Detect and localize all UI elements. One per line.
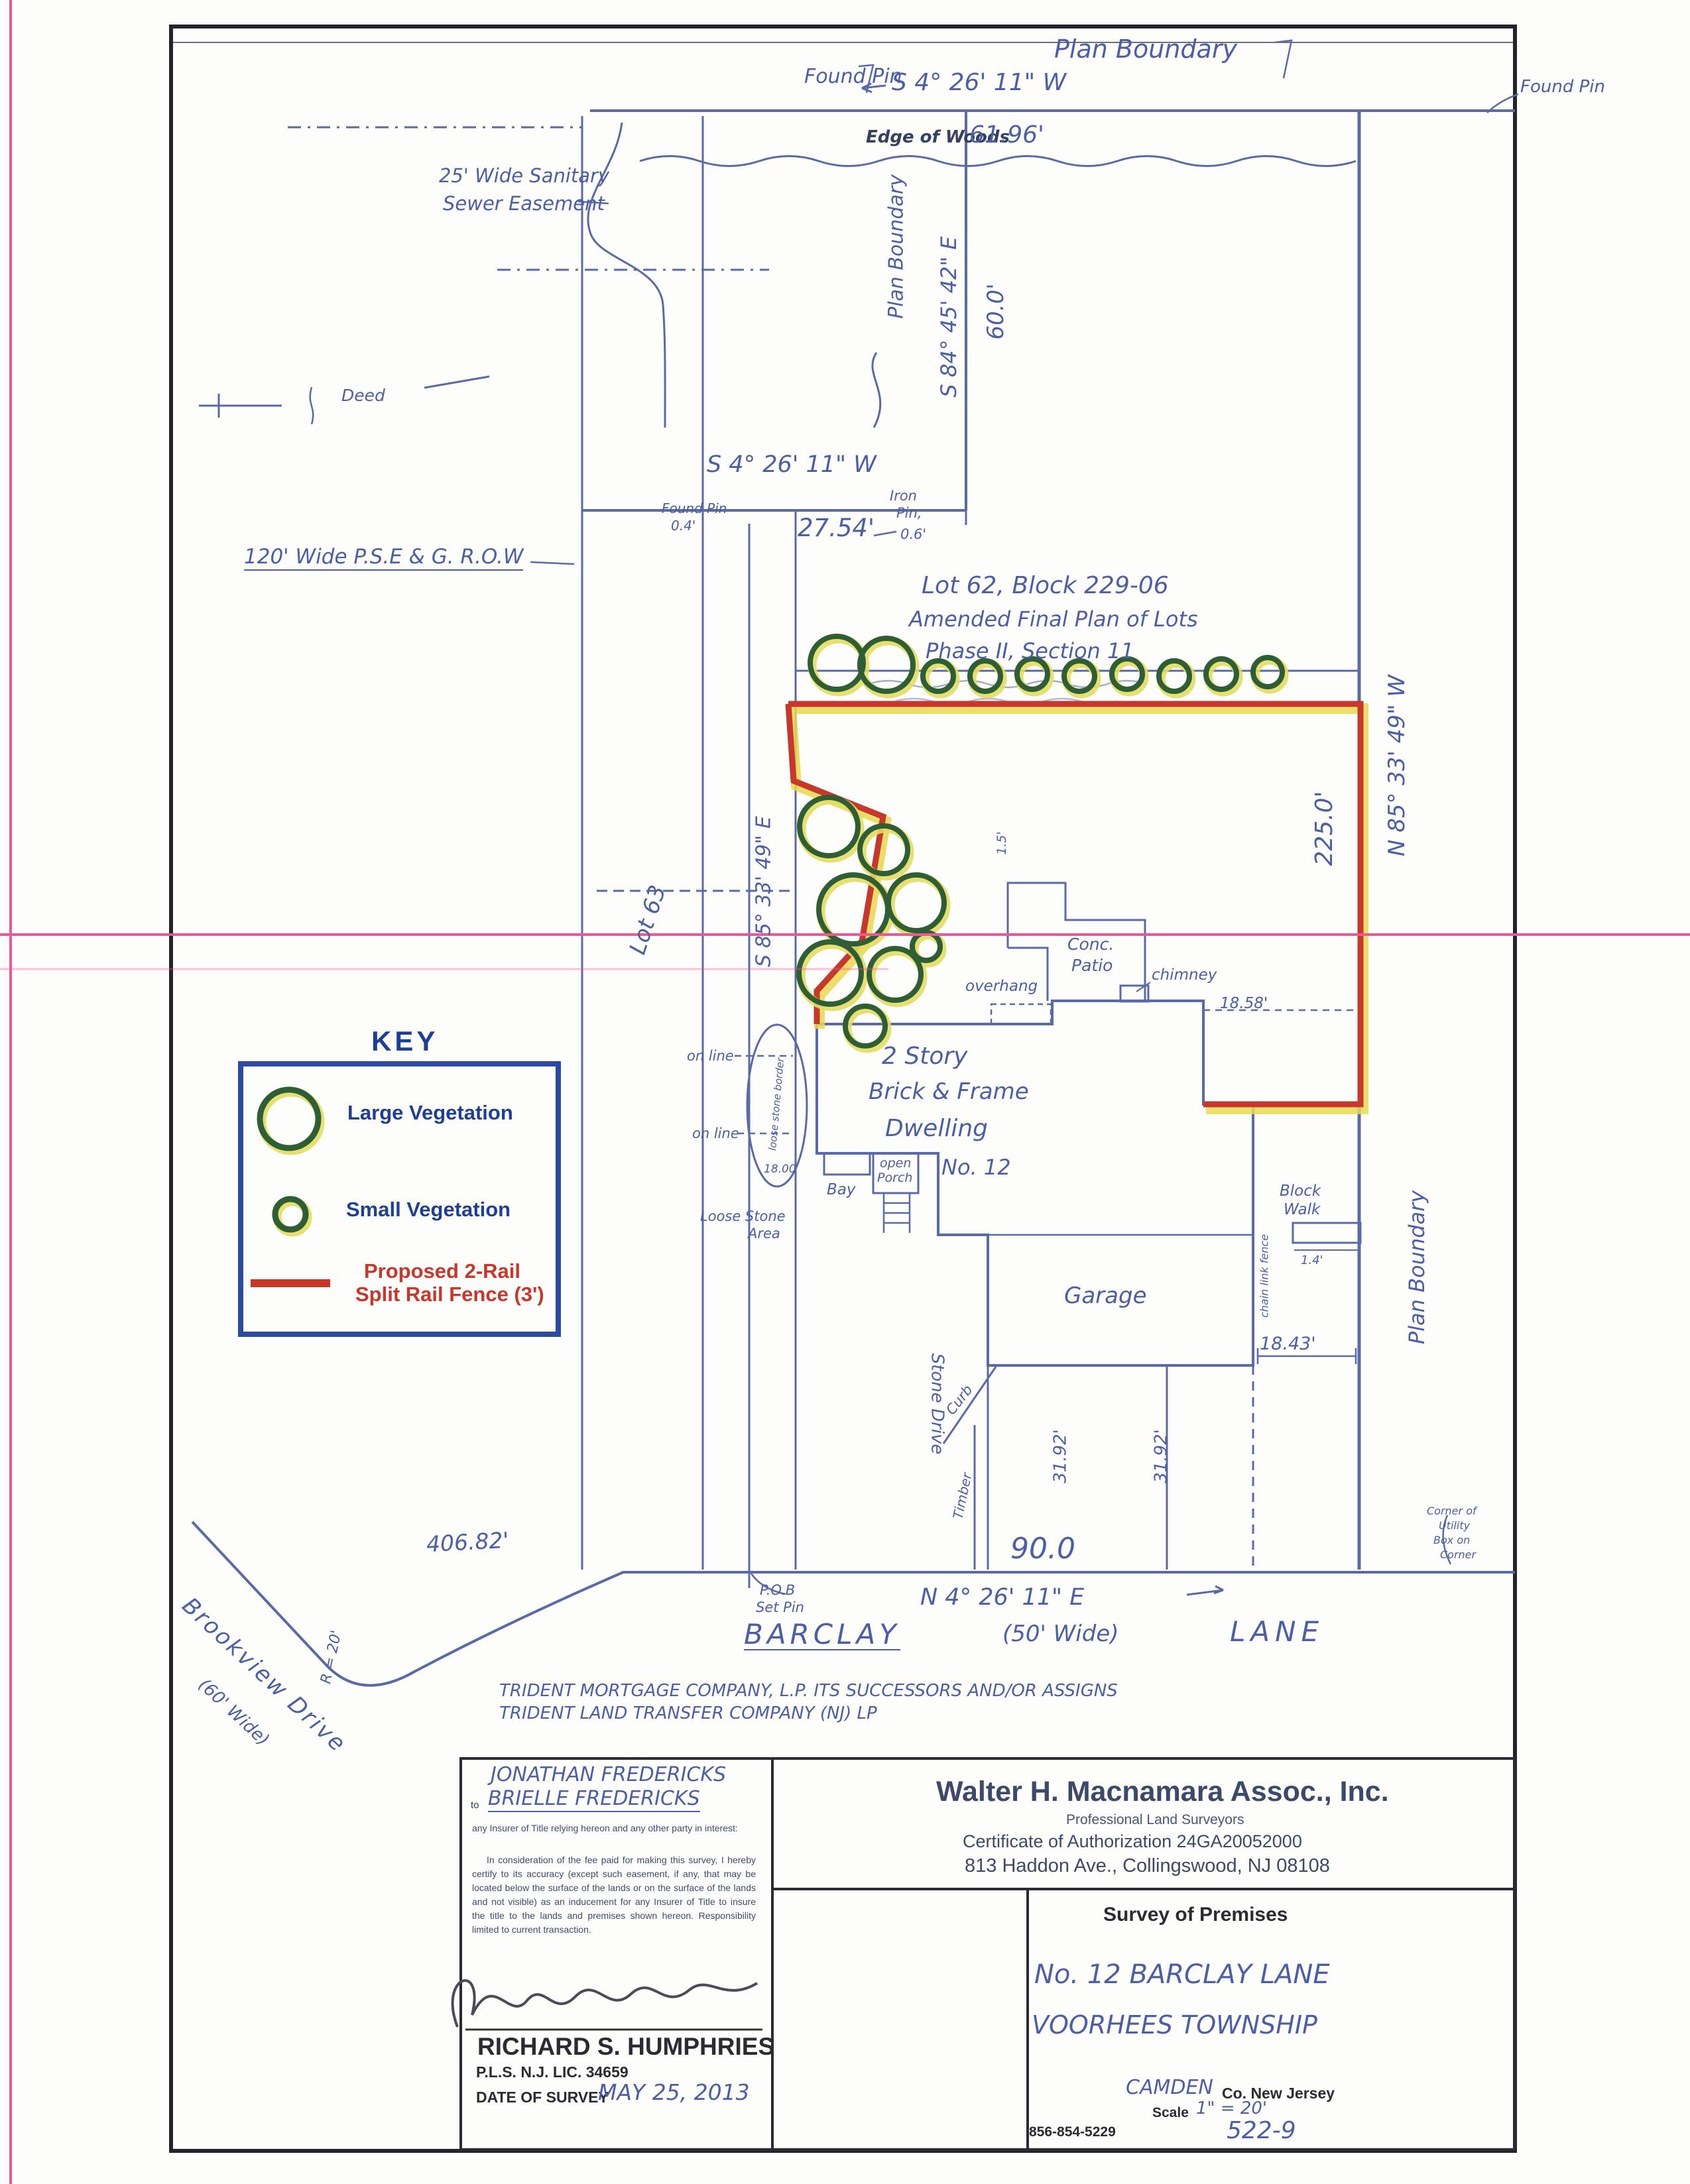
patio-label-1: Conc. — [1067, 936, 1114, 953]
east-length-label: 225.0' — [1312, 791, 1337, 866]
porch-label-1: open — [880, 1157, 911, 1171]
corridor-length-label: 60.0' — [985, 283, 1008, 339]
chain-link-fence-label: chain link fence — [1260, 1234, 1271, 1318]
client-to-label: to — [471, 1800, 479, 1811]
lot62-line2: Amended Final Plan of Lots — [909, 608, 1198, 631]
corridor-plan-boundary-label: Plan Boundary — [886, 174, 907, 319]
lot62-line1: Lot 62, Block 229-06 — [922, 573, 1169, 599]
sewer-easement-line1: 25' Wide Sanitary — [439, 166, 609, 186]
pseg-row-label: 120' Wide P.S.E & G. R.O.W — [244, 546, 523, 571]
firm-subtitle: Professional Land Surveyors — [1066, 1812, 1244, 1827]
chimney-label: chimney — [1152, 967, 1217, 983]
surveyor-license: P.L.S. N.J. LIC. 34659 — [476, 2064, 629, 2081]
west-bearing-label: S 85° 33' 49" E — [753, 816, 774, 967]
key-large-vegetation-label: Large Vegetation — [347, 1102, 513, 1124]
street-lines — [192, 1515, 1515, 1686]
dwelling-number: No. 12 — [941, 1157, 1011, 1179]
offset-15-label: 1.5' — [996, 831, 1009, 854]
mid-distance-label: 27.54' — [798, 516, 875, 542]
east-bearing-label: N 85° 33' 49" W — [1386, 675, 1410, 856]
corridor-bearing-label: S 84° 45' 42" E — [938, 237, 961, 398]
premises-address-2: VOORHEES TOWNSHIP — [1032, 2012, 1317, 2039]
owner-line-1: TRIDENT MORTGAGE COMPANY, L.P. ITS SUCCE… — [499, 1682, 1118, 1700]
on-line-label-1: on line — [687, 1049, 734, 1063]
vegetation-symbols — [799, 636, 1284, 1049]
signature — [453, 1981, 762, 2030]
certification-text-1: any Insurer of Title relying hereon and … — [472, 1821, 756, 1835]
deed-label: Deed — [341, 387, 385, 404]
client-name-1: JONATHAN FREDERICKS — [491, 1764, 726, 1786]
date-of-survey-value: MAY 25, 2013 — [598, 2081, 750, 2104]
certification-text-2: In consideration of the fee paid for mak… — [472, 1853, 756, 1937]
overhang-label: overhang — [965, 978, 1038, 994]
firm-phone: 856-854-5229 — [1029, 2124, 1116, 2140]
found-pin-left-label: Found Pin — [804, 66, 902, 87]
edge-of-woods-length: 61.96' — [969, 123, 1044, 148]
found-pin-right-label: Found Pin — [1520, 78, 1605, 96]
utility-corner-note-2: Utility — [1439, 1521, 1470, 1532]
dim-1843-label: 18.43' — [1260, 1335, 1316, 1353]
loose-stone-area-label-1: Loose Stone — [700, 1209, 786, 1224]
walk-offset-label: 1.4' — [1301, 1255, 1323, 1267]
loose-stone-area-label-2: Area — [748, 1226, 780, 1241]
lot62-line3: Phase II, Section 11 — [926, 640, 1134, 663]
porch-label-2: Porch — [877, 1172, 912, 1185]
survey-of-premises-label: Survey of Premises — [1103, 1904, 1288, 1925]
street-name-2: (50' Wide) — [1002, 1623, 1119, 1646]
key-fence-label-2: Split Rail Fence (3') — [355, 1283, 544, 1306]
drawing-border — [171, 27, 1515, 2151]
dim-1800-label: 18.00 — [764, 1164, 796, 1176]
iron-pin-line2: Pin, — [896, 506, 922, 520]
date-of-survey-label: DATE OF SURVEY — [476, 2089, 609, 2106]
sewer-easement-line2: Sewer Easement — [443, 194, 605, 213]
key-title: KEY — [371, 1026, 438, 1057]
block-walk-label-1: Block — [1280, 1183, 1321, 1199]
firm-name: Walter H. Macnamara Assoc., Inc. — [936, 1776, 1389, 1808]
bay-label: Bay — [827, 1182, 855, 1198]
utility-corner-note-1: Corner of — [1427, 1506, 1477, 1517]
dim-3192-a: 31.92' — [1052, 1429, 1069, 1483]
utility-corner-note-4: Corner — [1440, 1550, 1476, 1561]
owner-line-2: TRIDENT LAND TRANSFER COMPANY (NJ) LP — [499, 1705, 877, 1723]
east-plan-boundary-label: Plan Boundary — [1406, 1190, 1429, 1344]
mid-bearing-label: S 4° 26' 11" W — [707, 453, 876, 477]
pob-label-2: Set Pin — [756, 1600, 804, 1615]
garage-label: Garage — [1064, 1285, 1147, 1308]
street-bearing-label: N 4° 26' 11" E — [920, 1585, 1084, 1610]
mid-found-pin-offset: 0.4' — [671, 519, 695, 533]
on-line-label-2: on line — [692, 1126, 739, 1141]
key-fence-swatch — [251, 1279, 330, 1287]
key-small-vegetation-label: Small Vegetation — [346, 1198, 511, 1221]
surveyor-name: RICHARD S. HUMPHRIES — [477, 2034, 774, 2061]
job-number: 522-9 — [1227, 2118, 1296, 2144]
client-name-2: BRIELLE FREDERICKS — [488, 1788, 700, 1812]
key-fence-label-1: Proposed 2-Rail — [364, 1260, 520, 1283]
dwelling-line2: Brick & Frame — [869, 1080, 1029, 1104]
firm-certificate: Certificate of Authorization 24GA2005200… — [963, 1832, 1302, 1852]
dwelling-line3: Dwelling — [885, 1116, 988, 1141]
street-name-3: LANE — [1230, 1617, 1324, 1646]
iron-pin-offset: 0.6' — [900, 527, 926, 542]
frontage-label: 90.0 — [1010, 1534, 1075, 1564]
plan-linework — [0, 0, 1690, 2184]
mid-found-pin-label: Found Pin — [662, 502, 727, 516]
block-walk-label-2: Walk — [1284, 1202, 1320, 1218]
patio-label-2: Patio — [1071, 957, 1113, 974]
dim-3192-b: 31.92' — [1152, 1429, 1170, 1483]
scale-label: Scale — [1152, 2105, 1189, 2120]
street-name-1: BARCLAY — [744, 1620, 900, 1650]
utility-corner-note-3: Box on — [1433, 1535, 1470, 1546]
top-bearing-label: S 4° 26' 11" W — [892, 70, 1066, 95]
pob-label-1: P.O.B — [760, 1583, 795, 1597]
scale-value: 1" = 20' — [1196, 2100, 1267, 2118]
iron-pin-line1: Iron — [890, 489, 917, 503]
dwelling-line1: 2 Story — [882, 1044, 967, 1069]
county-handwritten: CAMDEN — [1126, 2077, 1213, 2098]
firm-address: 813 Haddon Ave., Collingswood, NJ 08108 — [965, 1856, 1330, 1877]
plan-boundary-top-label: Plan Boundary — [1054, 36, 1237, 63]
survey-scan-page: Found Pin Plan Boundary S 4° 26' 11" W F… — [0, 0, 1690, 2184]
street-length-label: 406.82' — [426, 1529, 509, 1556]
stone-drive-label: Stone Drive — [928, 1353, 945, 1455]
premises-address-1: No. 12 BARCLAY LANE — [1034, 1961, 1330, 1988]
dim-1858-label: 18.58' — [1220, 996, 1268, 1011]
scan-artifact-lines — [0, 0, 1690, 2184]
